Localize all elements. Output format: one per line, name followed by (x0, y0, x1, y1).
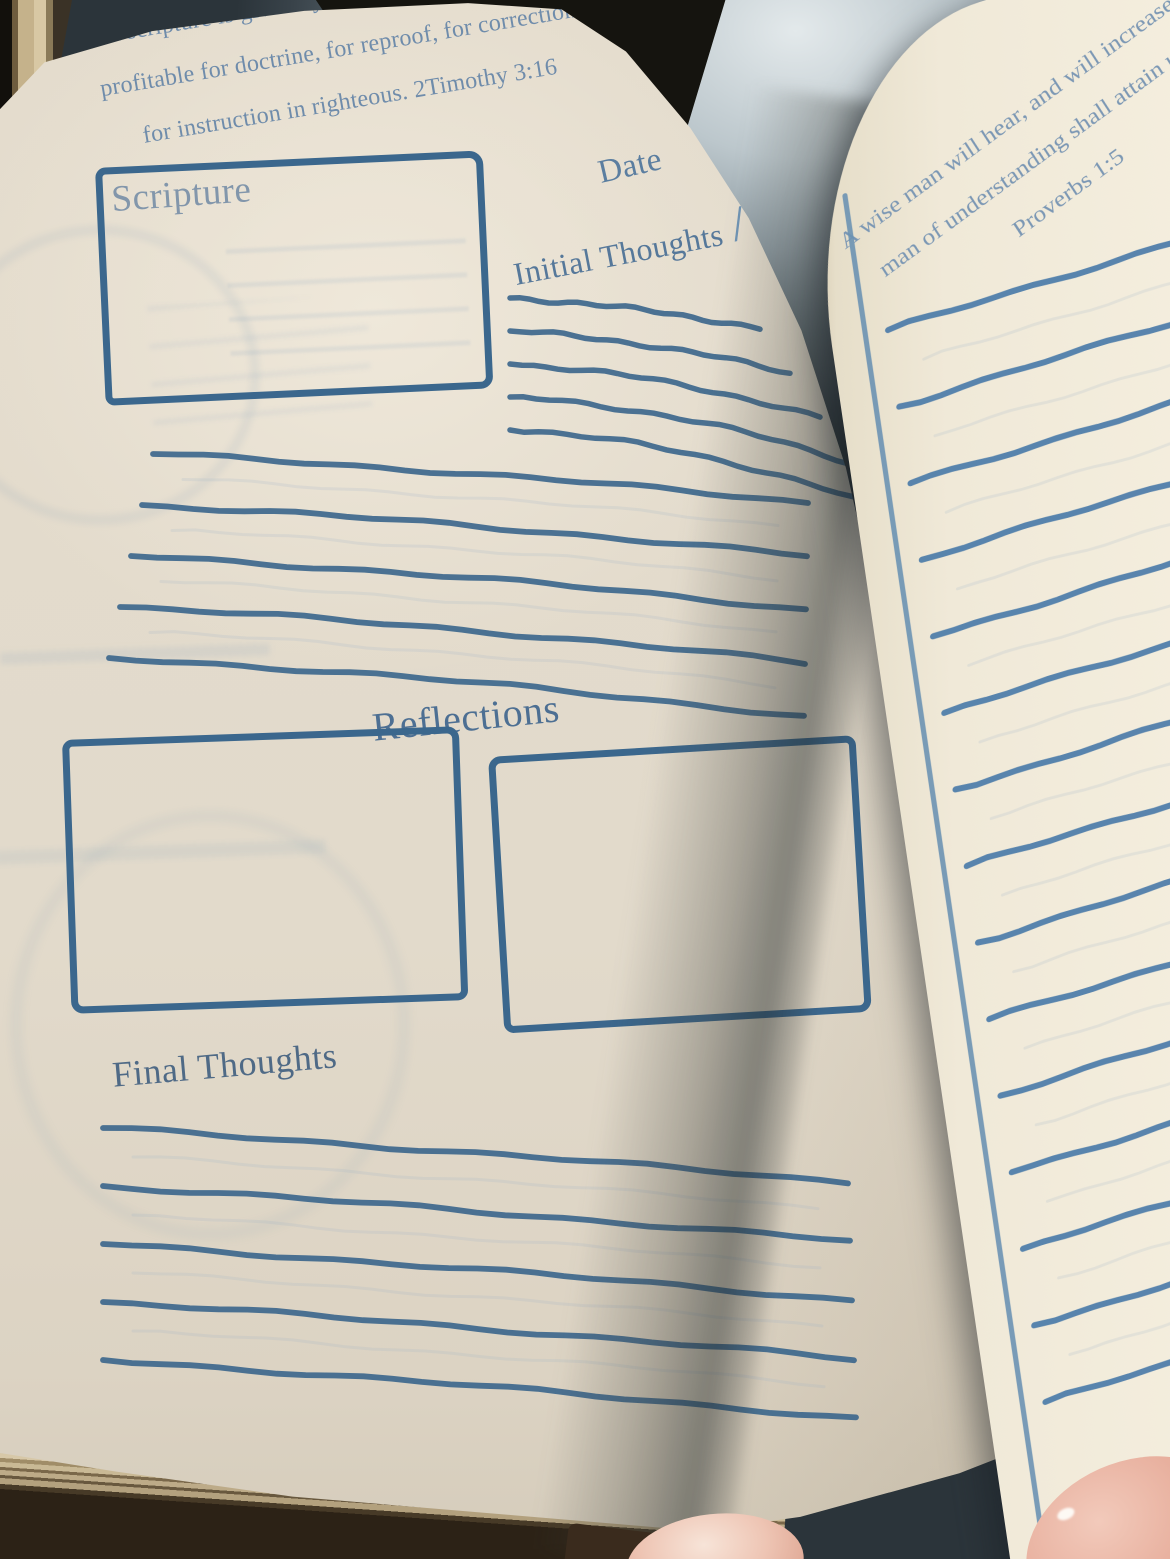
scripture-box: Scripture (95, 150, 493, 405)
finger-highlight (1055, 1505, 1076, 1522)
open-journal-photo: All scripture is given by inspiration of… (0, 0, 1170, 1559)
date-label: Date (595, 141, 666, 192)
show-through-ghost (226, 238, 472, 379)
scripture-label: Scripture (110, 168, 253, 221)
reflections-box-left (62, 726, 468, 1014)
final-thoughts-label: Final Thoughts (111, 1034, 339, 1095)
initial-thoughts-label: Initial Thoughts (510, 216, 726, 293)
